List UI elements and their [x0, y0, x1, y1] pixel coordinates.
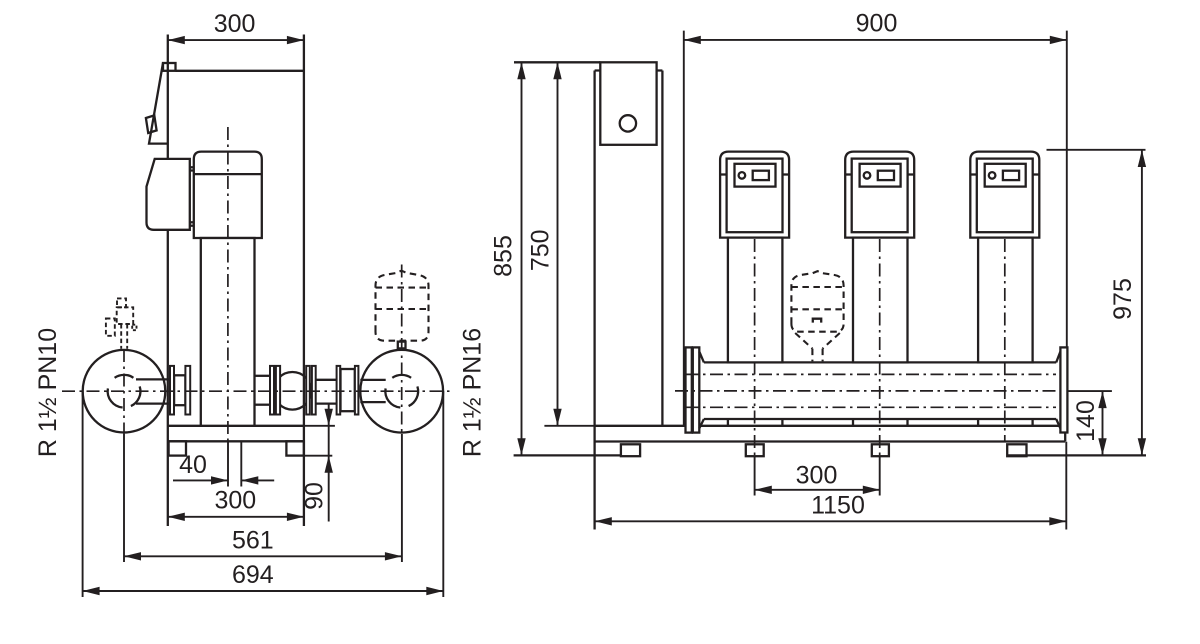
- svg-text:300: 300: [214, 10, 256, 38]
- svg-text:1150: 1150: [811, 492, 865, 520]
- svg-text:561: 561: [232, 527, 274, 555]
- svg-text:40: 40: [179, 451, 207, 479]
- svg-text:694: 694: [232, 561, 274, 589]
- svg-text:90: 90: [301, 482, 329, 510]
- svg-text:R 1½ PN16: R 1½ PN16: [459, 328, 487, 457]
- svg-text:855: 855: [490, 235, 518, 277]
- svg-text:300: 300: [796, 462, 838, 490]
- svg-text:R 1½ PN10: R 1½ PN10: [34, 328, 62, 457]
- svg-text:140: 140: [1072, 400, 1100, 442]
- svg-text:900: 900: [856, 10, 898, 38]
- svg-text:300: 300: [214, 487, 256, 515]
- svg-text:750: 750: [527, 229, 555, 271]
- svg-text:975: 975: [1109, 278, 1137, 320]
